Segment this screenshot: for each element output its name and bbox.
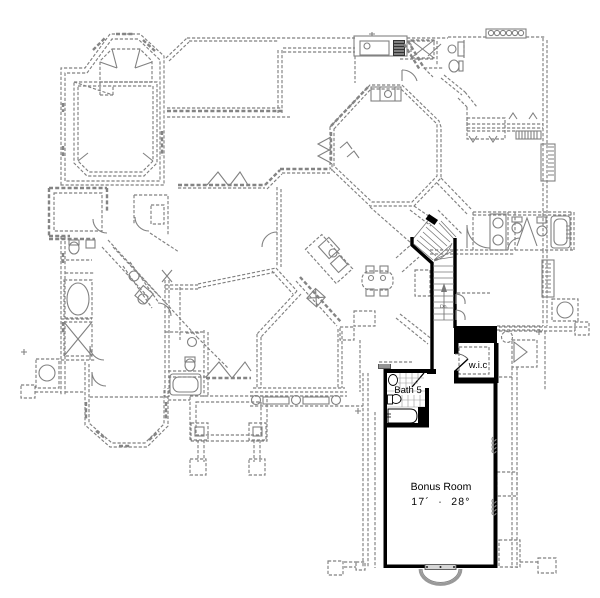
svg-text:Bonus Room: Bonus Room xyxy=(411,481,472,493)
svg-text:Bath 5: Bath 5 xyxy=(394,385,421,396)
svg-text:Dn.: Dn. xyxy=(440,304,448,310)
svg-text:w.i.c: w.i.c xyxy=(468,360,488,371)
svg-text:17´ · 28°: 17´ · 28° xyxy=(411,496,470,508)
